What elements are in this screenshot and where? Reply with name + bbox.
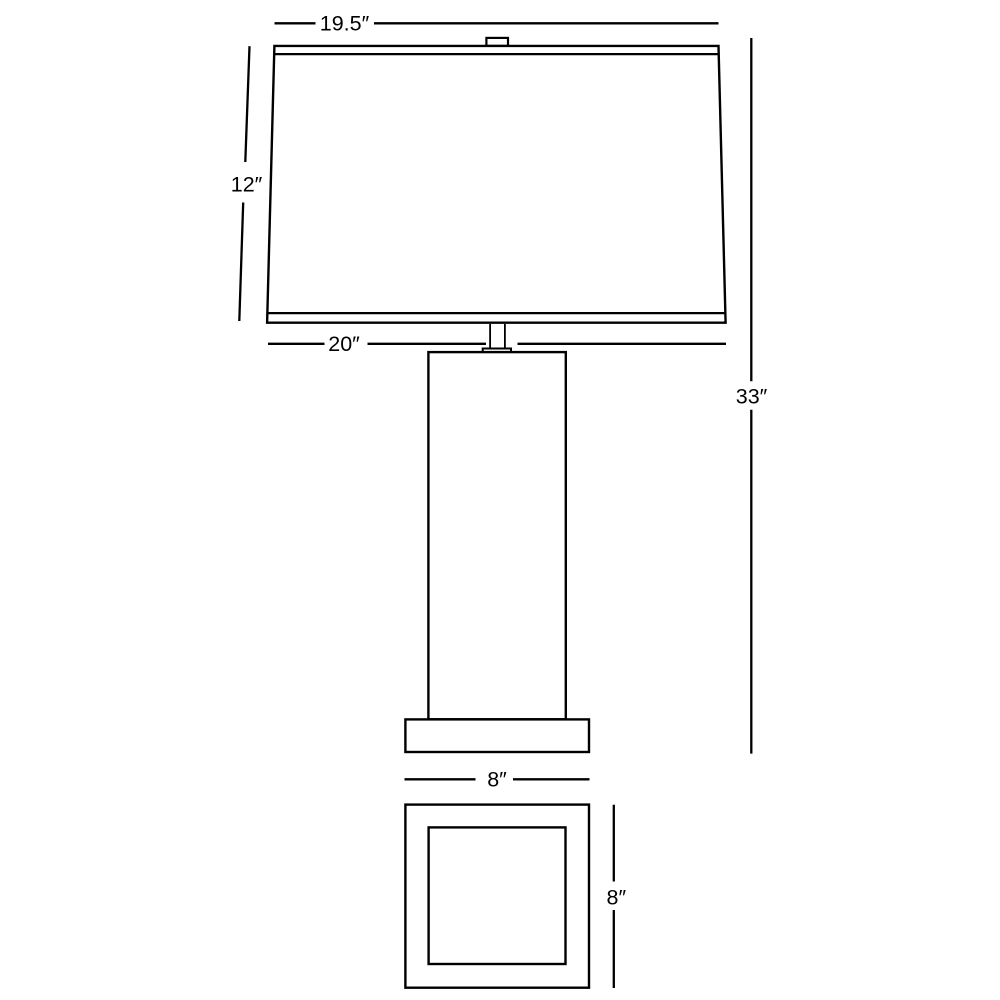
svg-text:8″: 8″ bbox=[607, 885, 627, 909]
svg-text:20″: 20″ bbox=[328, 332, 360, 356]
svg-text:8″: 8″ bbox=[487, 767, 507, 791]
svg-text:19.5″: 19.5″ bbox=[320, 12, 370, 36]
svg-text:33″: 33″ bbox=[736, 384, 768, 408]
svg-text:12″: 12″ bbox=[231, 172, 263, 196]
